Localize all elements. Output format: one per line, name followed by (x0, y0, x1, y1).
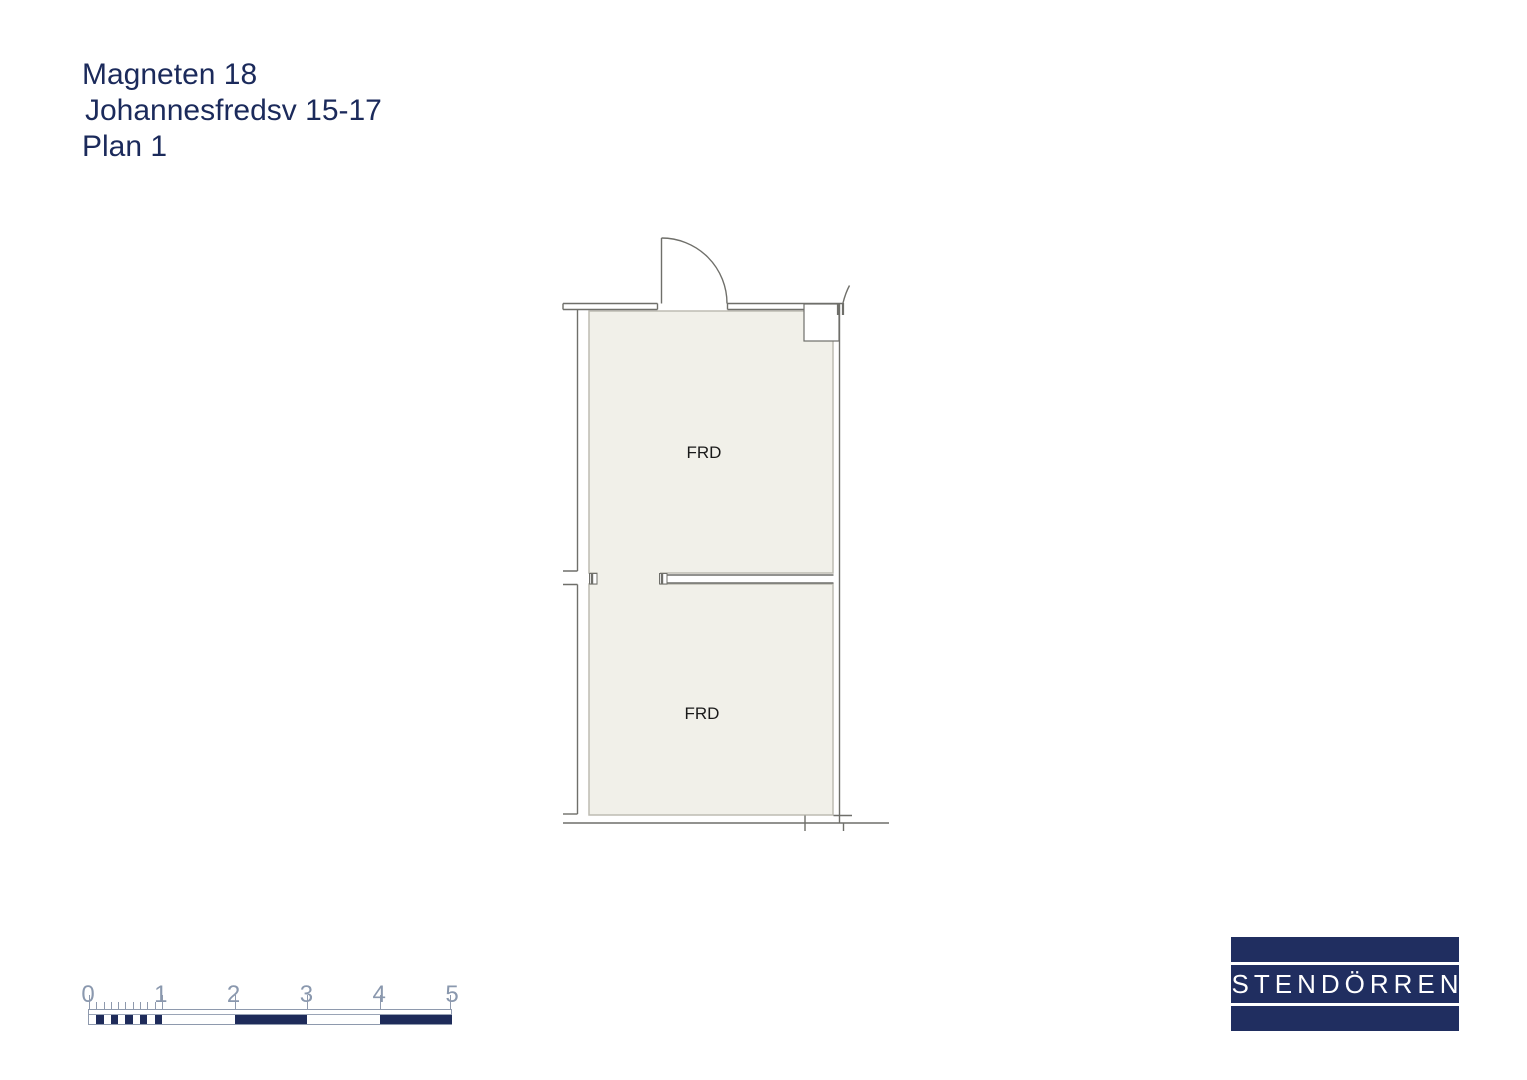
scale-label-3: 3 (300, 983, 313, 1007)
scale-tick-minor (140, 1002, 141, 1010)
scale-seg (155, 1015, 162, 1024)
scale-seg (111, 1015, 118, 1024)
scale-tick-minor (96, 1002, 97, 1010)
scale-seg (380, 1015, 452, 1024)
logo-bottom-band (1231, 1006, 1459, 1031)
scale-tick-major (450, 995, 451, 1010)
scale-tick-major (235, 995, 236, 1010)
room-label-lower: FRD (685, 704, 720, 723)
scale-tick-minor (104, 1002, 105, 1010)
scale-label-2: 2 (227, 983, 240, 1007)
scale-tick-major (380, 995, 381, 1010)
scale-label-1: 1 (154, 983, 167, 1007)
scale-tick-minor (147, 1002, 148, 1010)
jamb-left (590, 574, 598, 585)
scale-tick-major (307, 995, 308, 1010)
top-wall-left (563, 304, 658, 310)
divider-wall (667, 575, 834, 583)
scale-tick-minor (125, 1002, 126, 1010)
floorplan-page: Magneten 18 Johannesfredsv 15-17 Plan 1 (0, 0, 1527, 1080)
door-swing-arc-icon (662, 238, 728, 304)
scale-tick-minor (111, 1002, 112, 1010)
scale-tick-major (89, 995, 90, 1010)
scale-tick-minor (118, 1002, 119, 1010)
scale-tick-minor (133, 1002, 134, 1010)
scale-seg (235, 1015, 308, 1024)
scale-bar: 0 1 2 3 4 5 (88, 983, 452, 1029)
room-lower-frd (589, 584, 833, 815)
room-passage (598, 572, 661, 586)
jamb-right (660, 574, 668, 585)
top-right-jamb (838, 303, 843, 315)
scale-label-4: 4 (373, 983, 386, 1007)
scale-seg (96, 1015, 103, 1024)
floorplan-drawing: FRD FRD (0, 0, 1527, 1080)
room-label-upper: FRD (687, 443, 722, 462)
scale-seg (140, 1015, 147, 1024)
corner-shaft (804, 304, 839, 341)
scale-bar-band (88, 1009, 452, 1025)
company-logo: STENDÖRREN (1231, 937, 1459, 1031)
scale-tick-major (162, 995, 163, 1010)
logo-top-band (1231, 937, 1459, 962)
room-upper-frd (589, 311, 833, 573)
adjacent-door-arc (843, 286, 850, 304)
scale-label-5: 5 (445, 983, 458, 1007)
scale-label-0: 0 (81, 983, 94, 1007)
logo-wordmark: STENDÖRREN (1231, 965, 1459, 1003)
scale-seg (125, 1015, 132, 1024)
left-wall-stub (563, 571, 578, 585)
scale-tick-minor (155, 1002, 156, 1010)
room-fills (589, 311, 833, 815)
